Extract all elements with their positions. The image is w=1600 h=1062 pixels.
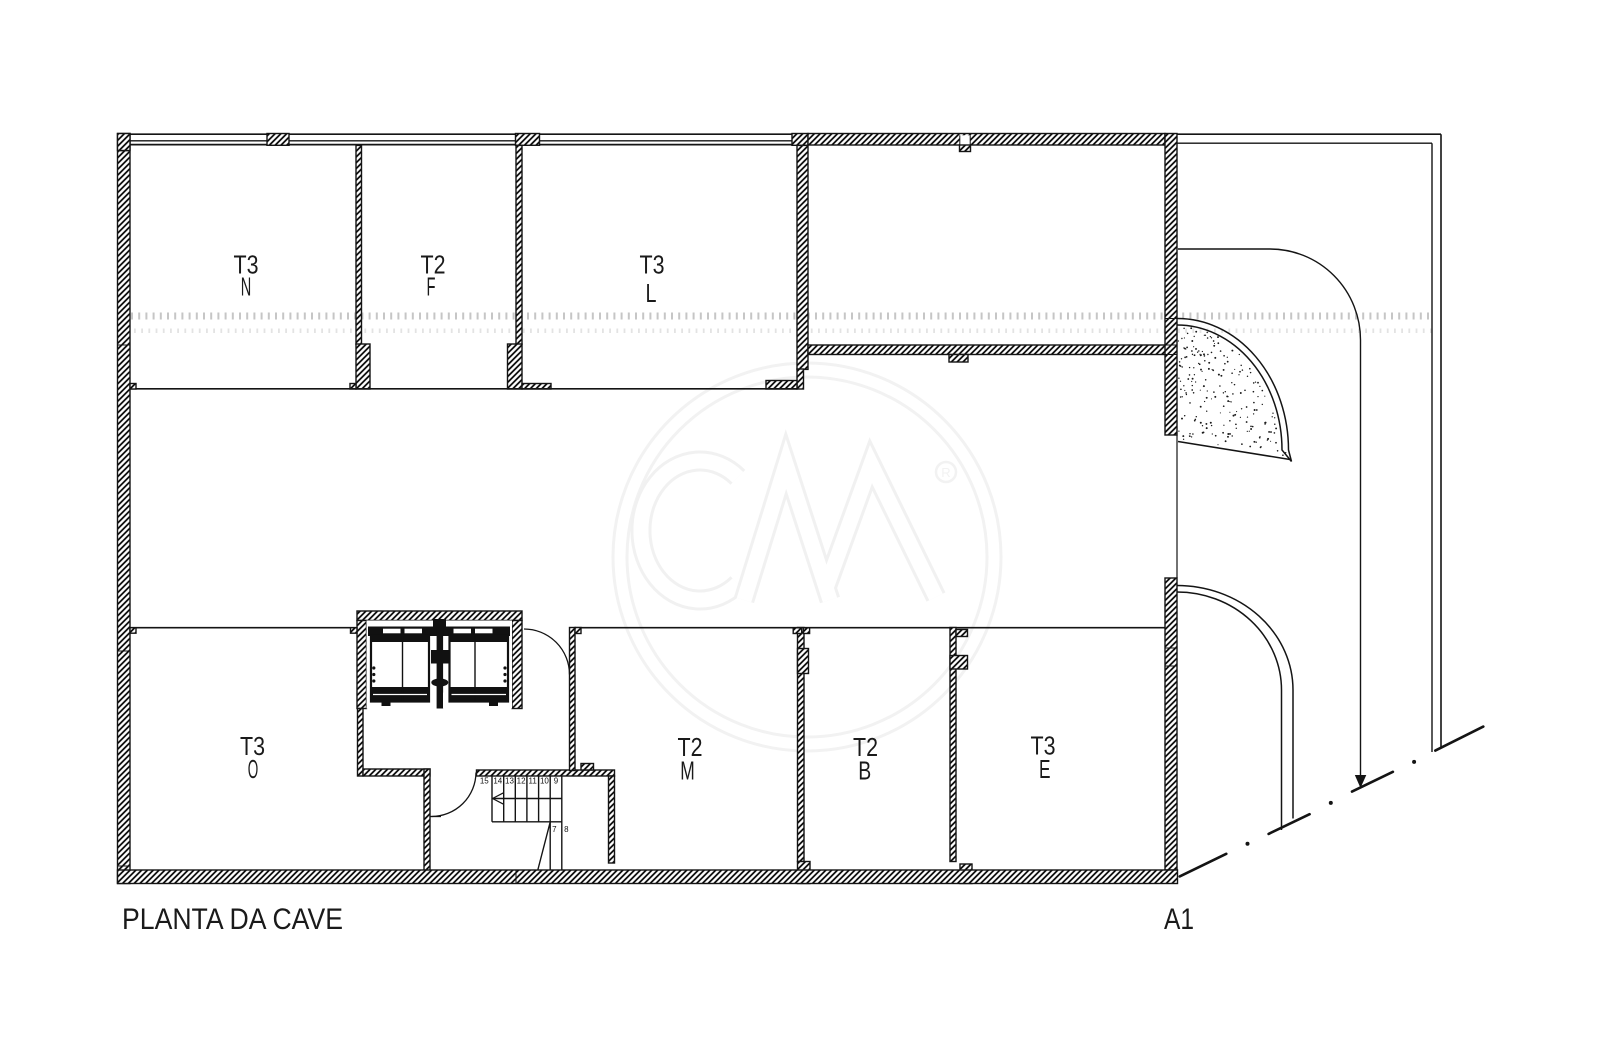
svg-text:9: 9	[554, 777, 559, 786]
svg-text:15: 15	[480, 777, 489, 786]
svg-text:8: 8	[564, 825, 569, 834]
svg-text:N: N	[241, 272, 252, 302]
svg-text:F: F	[427, 272, 436, 302]
svg-text:T3: T3	[640, 250, 665, 280]
svg-text:L: L	[646, 278, 657, 308]
svg-text:12: 12	[517, 777, 526, 786]
svg-text:R: R	[941, 465, 950, 480]
svg-text:13: 13	[505, 777, 514, 786]
svg-text:PLANTA DA CAVE: PLANTA DA CAVE	[122, 903, 343, 936]
svg-text:7: 7	[552, 825, 557, 834]
svg-text:O: O	[248, 754, 259, 784]
svg-text:E: E	[1039, 754, 1051, 784]
svg-text:10: 10	[540, 777, 549, 786]
svg-text:B: B	[858, 756, 871, 786]
svg-text:M: M	[680, 756, 695, 786]
svg-text:A1: A1	[1164, 903, 1194, 936]
svg-text:11: 11	[529, 777, 538, 786]
svg-text:14: 14	[493, 777, 502, 786]
